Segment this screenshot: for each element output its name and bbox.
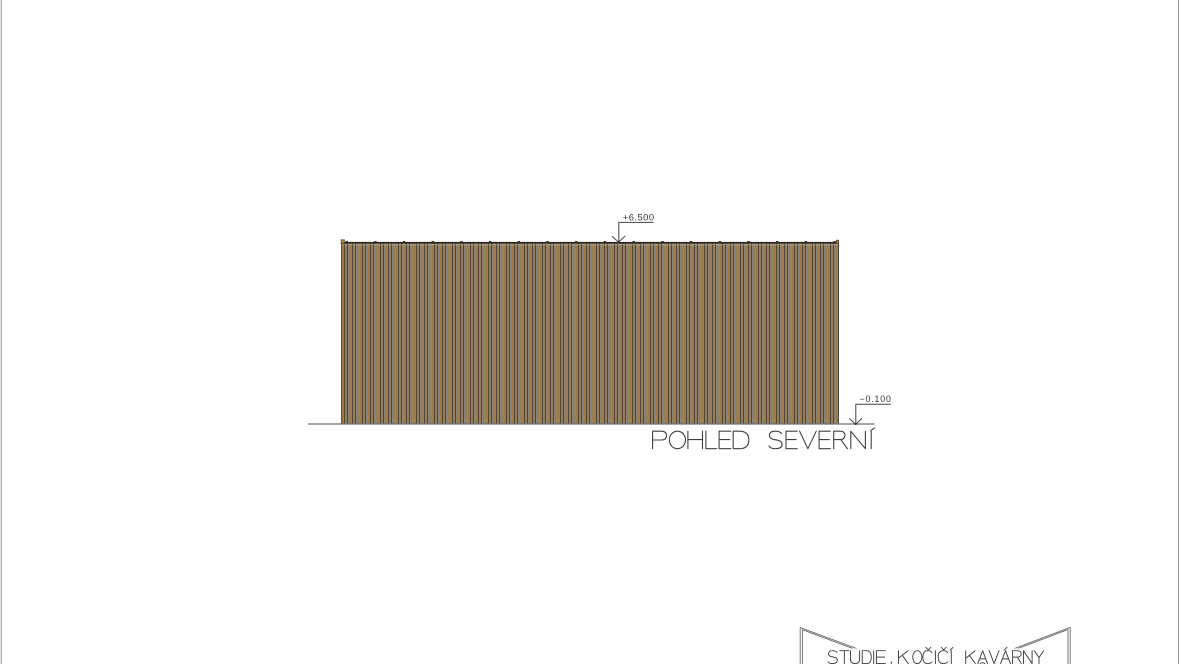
svg-text:−0.100: −0.100 bbox=[860, 394, 891, 404]
svg-text:+6.500: +6.500 bbox=[623, 212, 654, 222]
